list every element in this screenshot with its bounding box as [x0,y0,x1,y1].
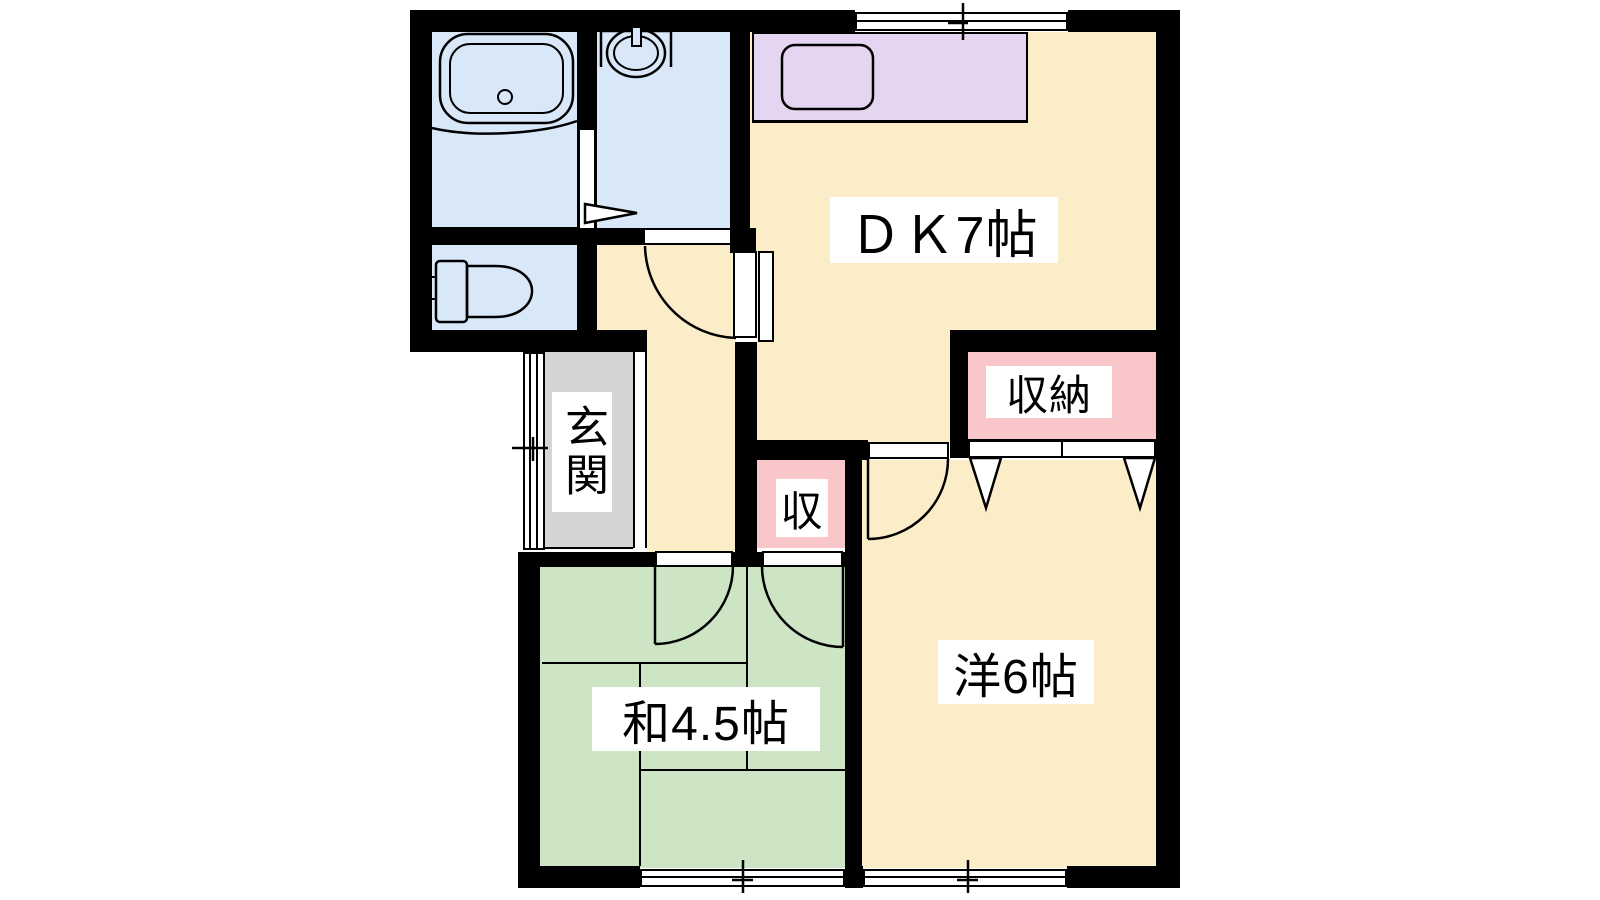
japanese-closet-door-gap [762,551,843,567]
dk-floor-lower [757,245,950,442]
bathroom-floor [432,28,577,228]
floorplan-canvas: ＤＫ7帖 洋6帖 和4.5帖 玄関 収納 収 [0,0,1600,900]
wall-bottom-right [1067,866,1180,888]
closet-small-label: 収 [776,479,828,537]
hallway-floor-lower [647,352,735,554]
western-room-window [863,869,1067,887]
washroom-door-gap [643,228,732,245]
wall-bath-toilet [432,227,597,245]
wall-bottom-mid [845,866,863,888]
closet-large-door-divider [1061,440,1063,458]
wall-closet-small-top [757,440,845,460]
bathroom-door-strip [578,130,596,228]
wall-japanese-left [518,552,540,888]
wall-corner-washroom-dk [730,228,756,253]
hall-dk-doorway [758,251,774,342]
western-room-label: 洋6帖 [938,640,1094,704]
kitchen-counter [752,32,1028,122]
wall-toilet-right [577,245,597,332]
wall-outer-left [410,10,432,352]
wall-japanese-western [845,440,862,868]
wall-washroom-dk [730,28,750,253]
entrance-step-band [633,352,647,548]
japanese-room-label: 和4.5帖 [592,687,820,751]
wall-top-left [410,10,855,32]
washroom-door-leaf [733,251,757,338]
top-sliding-window [855,12,1068,31]
entrance-sliding-door [523,352,545,550]
wall-japanese-top-mid [733,552,762,567]
washroom-floor [597,28,730,229]
japanese-room-window [640,869,845,887]
wall-japanese-top-right [843,552,862,567]
wall-outer-right [1156,10,1180,888]
wall-closet-large-left [950,330,968,458]
entrance-label: 玄関 [552,392,612,512]
wall-toilet-bottom [410,330,647,352]
wall-japanese-top-left [518,552,655,567]
wall-washroom-bottom [597,228,643,245]
closet-large-label: 収納 [986,366,1112,418]
japanese-hall-door-gap [655,551,733,567]
western-door-gap [868,442,949,459]
wall-closet-large-top [950,330,1156,352]
wall-hall-dk [735,342,757,567]
dk-room-label: ＤＫ7帖 [830,197,1058,263]
toilet-floor [432,245,577,332]
